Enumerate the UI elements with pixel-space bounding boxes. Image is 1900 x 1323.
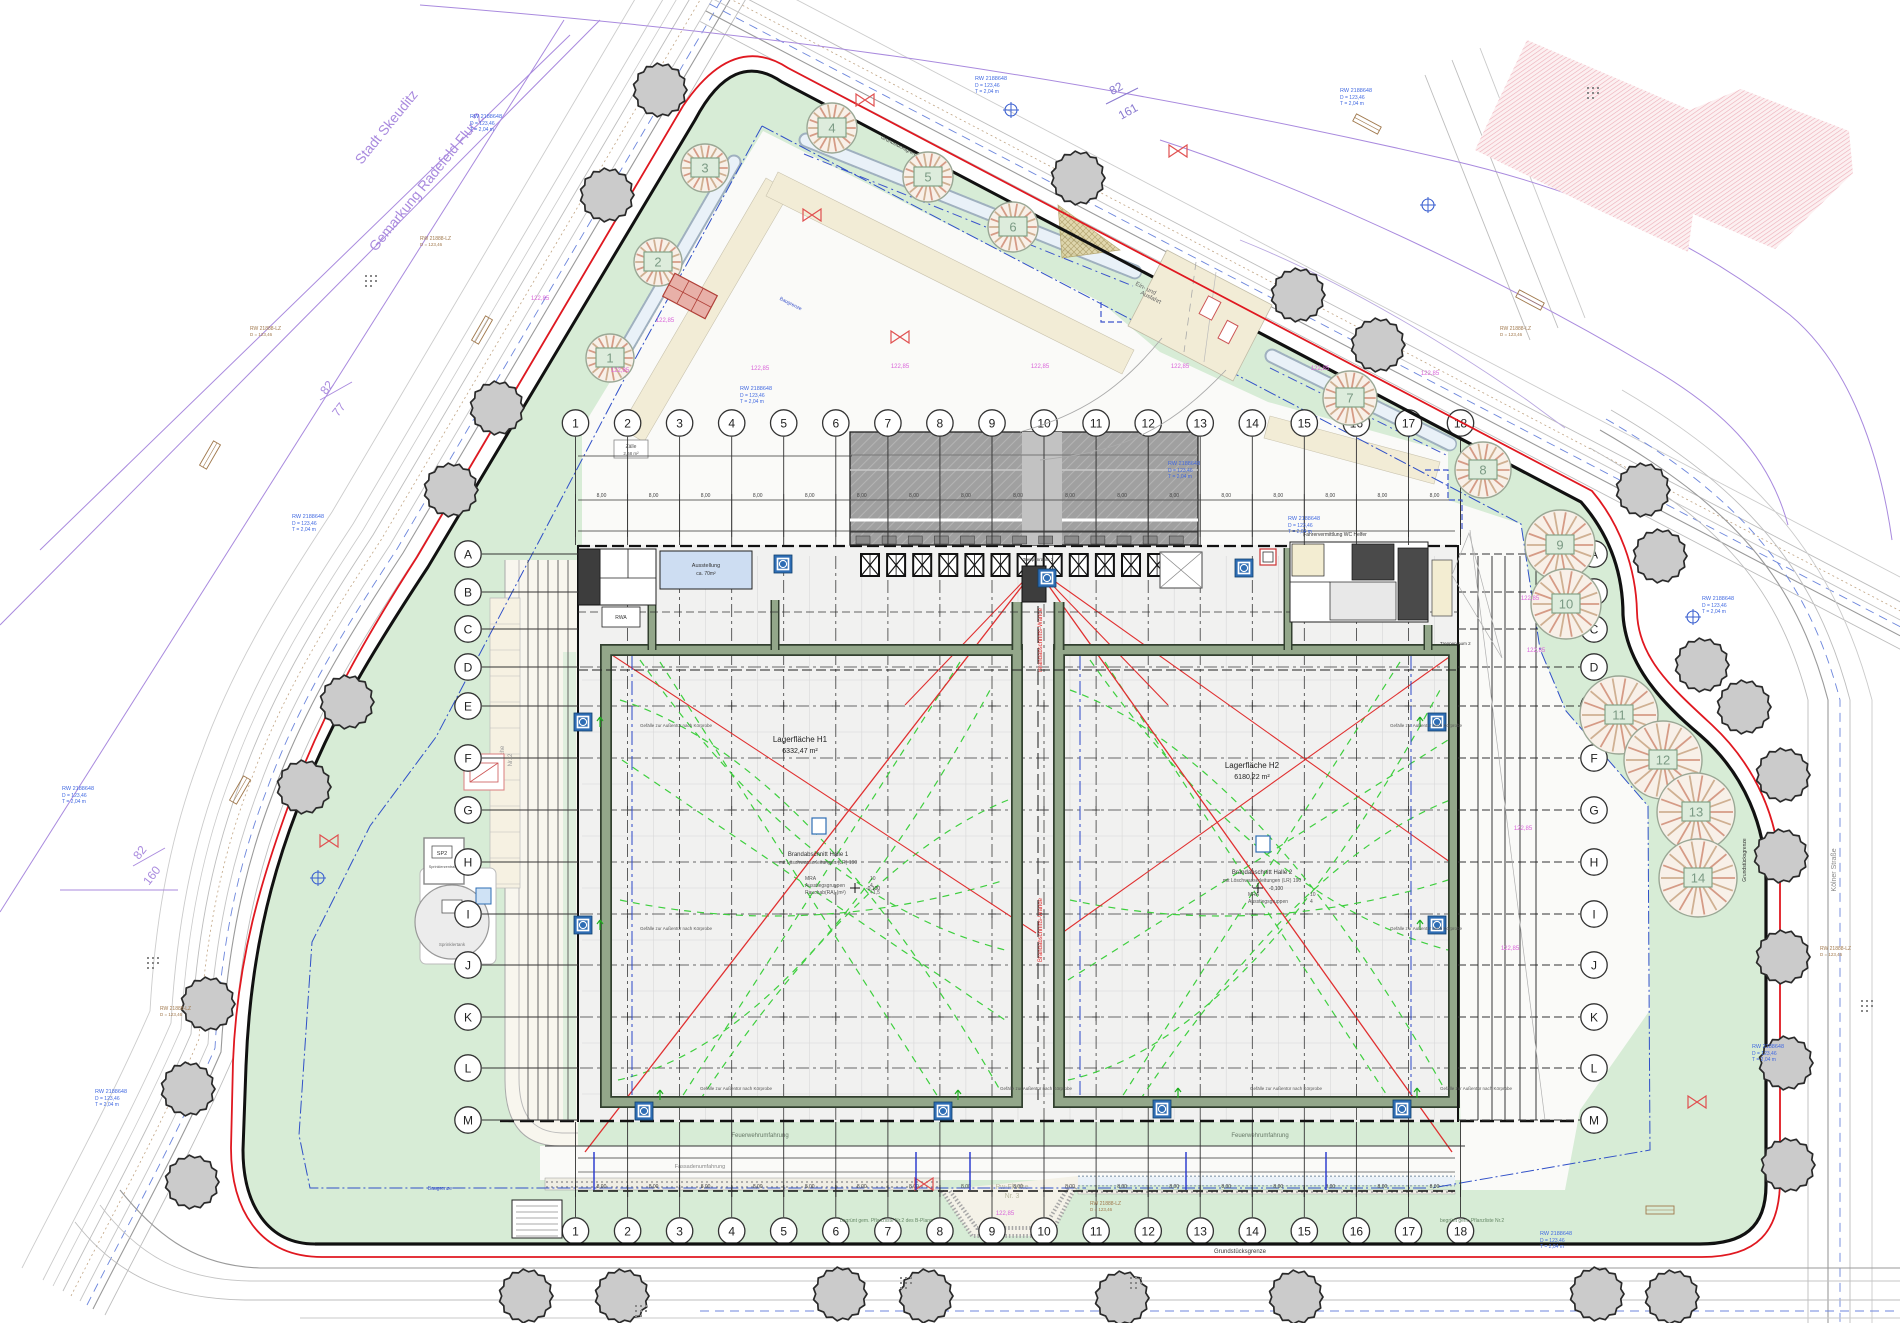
svg-text:13: 13 bbox=[1689, 805, 1703, 820]
svg-text:4: 4 bbox=[828, 121, 835, 136]
svg-text:L: L bbox=[465, 1062, 472, 1076]
svg-text:14: 14 bbox=[1246, 1225, 1260, 1239]
svg-text:10: 10 bbox=[1310, 892, 1316, 898]
svg-text:T = 2,04 m: T = 2,04 m bbox=[95, 1102, 119, 1108]
svg-text:122,85: 122,85 bbox=[996, 1211, 1015, 1217]
svg-text:T = 2,04 m: T = 2,04 m bbox=[1288, 529, 1312, 535]
svg-text:8: 8 bbox=[937, 417, 944, 431]
svg-text:4: 4 bbox=[728, 1225, 735, 1239]
svg-text:T = 2,04 m: T = 2,04 m bbox=[62, 799, 86, 805]
svg-text:Gefälle zur Außentür nach Körp: Gefälle zur Außentür nach Körprobe bbox=[1000, 1086, 1073, 1091]
svg-text:C: C bbox=[464, 623, 473, 637]
svg-text:M: M bbox=[1589, 1114, 1599, 1128]
svg-text:H: H bbox=[1590, 856, 1599, 870]
svg-text:RW 2188648: RW 2188648 bbox=[1340, 88, 1372, 94]
svg-text:8,00: 8,00 bbox=[805, 1184, 815, 1190]
svg-text:8,00: 8,00 bbox=[857, 493, 867, 499]
svg-text:D: D bbox=[1590, 661, 1599, 675]
svg-text:RW 2188648: RW 2188648 bbox=[740, 386, 772, 392]
svg-text:8,00: 8,00 bbox=[597, 1184, 607, 1190]
svg-text:10: 10 bbox=[1037, 1225, 1051, 1239]
svg-text:8,00: 8,00 bbox=[1273, 493, 1283, 499]
svg-text:122,85: 122,85 bbox=[1521, 596, 1540, 602]
svg-text:B: B bbox=[464, 586, 472, 600]
svg-text:1: 1 bbox=[572, 417, 579, 431]
svg-text:6: 6 bbox=[832, 417, 839, 431]
svg-text:J: J bbox=[465, 959, 471, 973]
svg-text:3: 3 bbox=[676, 1225, 683, 1239]
svg-text:Ausstiegsgruppen: Ausstiegsgruppen bbox=[1248, 899, 1288, 905]
svg-text:H: H bbox=[464, 856, 473, 870]
svg-text:8,00: 8,00 bbox=[909, 493, 919, 499]
svg-text:J: J bbox=[1591, 959, 1597, 973]
svg-text:Lagerfläche H1: Lagerfläche H1 bbox=[773, 735, 828, 744]
svg-text:MRA: MRA bbox=[805, 876, 817, 882]
svg-text:8,00: 8,00 bbox=[1065, 493, 1075, 499]
svg-text:10: 10 bbox=[1037, 417, 1051, 431]
svg-text:begrünt gem. Pflanzliste Nr.2: begrünt gem. Pflanzliste Nr.2 bbox=[1440, 1218, 1504, 1224]
svg-text:15: 15 bbox=[1298, 1225, 1312, 1239]
svg-text:T = 2,04 m: T = 2,04 m bbox=[470, 127, 494, 133]
svg-text:3: 3 bbox=[701, 161, 708, 176]
svg-text:8,00: 8,00 bbox=[1430, 1184, 1440, 1190]
svg-text:RW 2188648: RW 2188648 bbox=[1168, 461, 1200, 467]
svg-text:1: 1 bbox=[606, 351, 613, 366]
svg-text:RW 2188648: RW 2188648 bbox=[292, 514, 324, 520]
svg-text:8: 8 bbox=[1479, 463, 1486, 478]
svg-text:17: 17 bbox=[1402, 417, 1416, 431]
svg-text:M: M bbox=[463, 1114, 473, 1128]
svg-text:Gefälle zur Außentür nach Körp: Gefälle zur Außentür nach Körprobe bbox=[640, 723, 713, 728]
svg-text:Brandabschnitts-Wände: Brandabschnitts-Wände bbox=[1038, 607, 1044, 672]
svg-text:11: 11 bbox=[1612, 708, 1626, 723]
svg-text:8,00: 8,00 bbox=[597, 493, 607, 499]
svg-text:Ausstellung: Ausstellung bbox=[692, 563, 720, 569]
svg-text:mit Löschwasserleitungen (LR): mit Löschwasserleitungen (LR) 190 bbox=[1223, 878, 1302, 884]
svg-text:122,85: 122,85 bbox=[891, 364, 910, 370]
svg-text:T = 2,04 m: T = 2,04 m bbox=[1340, 101, 1364, 107]
svg-text:5: 5 bbox=[780, 417, 787, 431]
svg-text:F: F bbox=[1590, 752, 1597, 766]
svg-text:2: 2 bbox=[654, 255, 661, 270]
svg-text:D = 123,46: D = 123,46 bbox=[160, 1012, 183, 1017]
svg-text:4: 4 bbox=[728, 417, 735, 431]
svg-text:L: L bbox=[1591, 1062, 1598, 1076]
svg-text:Rauchab(RA) (m²): Rauchab(RA) (m²) bbox=[805, 890, 846, 896]
svg-text:122,85: 122,85 bbox=[1171, 364, 1190, 370]
svg-text:12: 12 bbox=[1656, 753, 1670, 768]
svg-text:8,00: 8,00 bbox=[1169, 493, 1179, 499]
svg-text:122,85: 122,85 bbox=[656, 318, 675, 324]
svg-text:RW 2188648: RW 2188648 bbox=[1702, 596, 1734, 602]
svg-text:8,00: 8,00 bbox=[753, 493, 763, 499]
svg-text:D: D bbox=[464, 661, 473, 675]
svg-text:11: 11 bbox=[1090, 1225, 1103, 1239]
svg-text:Fassadenumfahrung: Fassadenumfahrung bbox=[675, 1164, 725, 1170]
svg-text:mit Löschwasserleitungen (LR): mit Löschwasserleitungen (LR) 190 bbox=[779, 860, 858, 866]
svg-text:T = 2,04 m: T = 2,04 m bbox=[1540, 1244, 1564, 1250]
svg-text:13: 13 bbox=[1194, 417, 1208, 431]
svg-text:RW 2188648: RW 2188648 bbox=[1288, 516, 1320, 522]
svg-text:8,00: 8,00 bbox=[753, 1184, 763, 1190]
svg-text:7: 7 bbox=[885, 417, 892, 431]
svg-text:8,00: 8,00 bbox=[649, 493, 659, 499]
svg-text:G: G bbox=[463, 804, 472, 818]
svg-text:RW 2188648: RW 2188648 bbox=[62, 786, 94, 792]
svg-text:Grundstücksgrenze: Grundstücksgrenze bbox=[1214, 1249, 1267, 1255]
svg-text:F: F bbox=[464, 752, 471, 766]
svg-text:T = 2,04 m: T = 2,04 m bbox=[975, 89, 999, 95]
svg-text:Brandabschnitt Halle 1: Brandabschnitt Halle 1 bbox=[788, 852, 849, 858]
svg-text:11: 11 bbox=[1090, 417, 1103, 431]
svg-text:8,00: 8,00 bbox=[909, 1184, 919, 1190]
svg-text:begrünt gem. Pflanzliste Nr.2: begrünt gem. Pflanzliste Nr.2 des B-Plan… bbox=[840, 1218, 933, 1224]
svg-text:5: 5 bbox=[780, 1225, 787, 1239]
svg-text:RW 2188648: RW 2188648 bbox=[95, 1089, 127, 1095]
svg-text:8,00: 8,00 bbox=[1325, 1184, 1335, 1190]
svg-text:D = 123,46: D = 123,46 bbox=[1090, 1207, 1113, 1212]
svg-text:122,85: 122,85 bbox=[1311, 366, 1330, 372]
svg-text:6: 6 bbox=[832, 1225, 839, 1239]
svg-text:SP2: SP2 bbox=[437, 851, 447, 857]
svg-text:6180,22 m²: 6180,22 m² bbox=[1234, 774, 1270, 781]
svg-text:6332,47 m²: 6332,47 m² bbox=[782, 748, 818, 755]
svg-text:122,85: 122,85 bbox=[1501, 946, 1520, 952]
svg-text:Ausstiegsgruppen: Ausstiegsgruppen bbox=[805, 883, 845, 889]
svg-text:8,00: 8,00 bbox=[701, 1184, 711, 1190]
svg-text:8,00: 8,00 bbox=[1430, 493, 1440, 499]
svg-text:Brandabschnitts-Wände: Brandabschnitts-Wände bbox=[1038, 897, 1044, 962]
svg-text:8,00: 8,00 bbox=[1273, 1184, 1283, 1190]
svg-text:8,00: 8,00 bbox=[961, 493, 971, 499]
svg-text:I: I bbox=[1592, 908, 1595, 922]
svg-text:T = 2,04 m: T = 2,04 m bbox=[1168, 474, 1192, 480]
svg-text:8,00: 8,00 bbox=[1117, 493, 1127, 499]
svg-text:7: 7 bbox=[1346, 391, 1353, 406]
svg-text:G: G bbox=[1589, 804, 1598, 818]
svg-text:Fahrervermittlung WC Helfer: Fahrervermittlung WC Helfer bbox=[1303, 532, 1367, 538]
svg-text:17: 17 bbox=[1402, 1225, 1416, 1239]
svg-text:Gefälle zur Außentür nach Körp: Gefälle zur Außentür nach Körprobe bbox=[1250, 1086, 1323, 1091]
svg-text:8,00: 8,00 bbox=[701, 493, 711, 499]
svg-text:RW 2188648: RW 2188648 bbox=[470, 114, 502, 120]
svg-text:Feuerwehrumfahrung: Feuerwehrumfahrung bbox=[731, 1133, 788, 1139]
svg-text:RWA: RWA bbox=[615, 615, 627, 621]
svg-text:122,85: 122,85 bbox=[1031, 364, 1050, 370]
svg-text:E: E bbox=[464, 700, 472, 714]
svg-text:8,00: 8,00 bbox=[1013, 1184, 1023, 1190]
svg-text:Grundstücksgrenze: Grundstücksgrenze bbox=[1742, 838, 1748, 882]
svg-text:Gefälle zur Außentür nach Körp: Gefälle zur Außentür nach Körprobe bbox=[1390, 926, 1463, 931]
svg-text:8,00: 8,00 bbox=[1117, 1184, 1127, 1190]
svg-text:Sprinklertank: Sprinklertank bbox=[439, 942, 466, 947]
svg-text:10: 10 bbox=[1559, 597, 1573, 612]
svg-text:122,85: 122,85 bbox=[1514, 826, 1533, 832]
svg-text:122,85: 122,85 bbox=[1421, 371, 1440, 377]
svg-text:Gefälle zur Außentür nach Körp: Gefälle zur Außentür nach Körprobe bbox=[1440, 1086, 1513, 1091]
svg-text:13: 13 bbox=[1194, 1225, 1208, 1239]
svg-text:10: 10 bbox=[870, 876, 876, 882]
svg-text:122,85: 122,85 bbox=[531, 296, 550, 302]
svg-text:RW 2188648: RW 2188648 bbox=[1540, 1231, 1572, 1237]
svg-text:2: 2 bbox=[624, 1225, 631, 1239]
svg-text:8,00: 8,00 bbox=[1378, 1184, 1388, 1190]
svg-text:1: 1 bbox=[572, 1225, 579, 1239]
svg-text:8,00: 8,00 bbox=[1221, 1184, 1231, 1190]
svg-text:T = 2,04 m: T = 2,04 m bbox=[292, 527, 316, 533]
svg-text:8,00: 8,00 bbox=[1013, 493, 1023, 499]
svg-text:3: 3 bbox=[676, 417, 683, 431]
svg-text:8,00: 8,00 bbox=[1065, 1184, 1075, 1190]
svg-text:D = 123,46: D = 123,46 bbox=[1500, 332, 1523, 337]
svg-text:T = 2,04 m: T = 2,04 m bbox=[1702, 609, 1726, 615]
svg-text:-0,100: -0,100 bbox=[866, 886, 880, 892]
svg-text:Brandabschnitt Halle 2: Brandabschnitt Halle 2 bbox=[1232, 870, 1293, 876]
svg-text:ca. 70m²: ca. 70m² bbox=[696, 571, 716, 577]
svg-text:Lagerfläche H2: Lagerfläche H2 bbox=[1225, 761, 1280, 770]
svg-text:D = 123,46: D = 123,46 bbox=[1820, 952, 1843, 957]
svg-text:7: 7 bbox=[885, 1225, 892, 1239]
svg-text:6: 6 bbox=[1009, 220, 1016, 235]
svg-text:8,00: 8,00 bbox=[1378, 493, 1388, 499]
svg-text:Treppenraum 3: Treppenraum 3 bbox=[1023, 557, 1054, 562]
svg-text:K: K bbox=[464, 1011, 472, 1025]
svg-text:18: 18 bbox=[1454, 1225, 1468, 1239]
svg-text:14: 14 bbox=[1246, 417, 1260, 431]
svg-text:8,00: 8,00 bbox=[1169, 1184, 1179, 1190]
svg-text:8,00: 8,00 bbox=[857, 1184, 867, 1190]
svg-text:122,85: 122,85 bbox=[611, 368, 630, 374]
svg-text:2,68 m²: 2,68 m² bbox=[623, 451, 639, 456]
svg-text:Baugrenze: Baugrenze bbox=[428, 1186, 452, 1192]
svg-text:T = 2,04 m: T = 2,04 m bbox=[740, 399, 764, 405]
svg-text:D = 123,46: D = 123,46 bbox=[420, 242, 443, 247]
svg-text:D = 123,46: D = 123,46 bbox=[250, 332, 273, 337]
svg-text:16: 16 bbox=[1350, 1225, 1364, 1239]
svg-text:122,85: 122,85 bbox=[1527, 648, 1546, 654]
svg-text:RW 2188648: RW 2188648 bbox=[1752, 1044, 1784, 1050]
svg-text:8: 8 bbox=[937, 1225, 944, 1239]
svg-text:5: 5 bbox=[924, 170, 931, 185]
svg-text:K: K bbox=[1590, 1011, 1598, 1025]
svg-text:-0,100: -0,100 bbox=[1269, 886, 1283, 892]
svg-text:14: 14 bbox=[1691, 871, 1705, 886]
svg-text:I: I bbox=[466, 908, 469, 922]
svg-text:12: 12 bbox=[1142, 417, 1156, 431]
svg-text:Gefälle zur Außentür nach Körp: Gefälle zur Außentür nach Körprobe bbox=[700, 1086, 773, 1091]
svg-text:Treppenraum 2: Treppenraum 2 bbox=[1440, 641, 1471, 646]
svg-text:8,00: 8,00 bbox=[805, 493, 815, 499]
svg-text:9: 9 bbox=[989, 417, 996, 431]
svg-text:Nr. 2: Nr. 2 bbox=[508, 753, 514, 766]
svg-text:12: 12 bbox=[1142, 1225, 1156, 1239]
svg-text:Nr. 3: Nr. 3 bbox=[1005, 1193, 1020, 1200]
svg-text:9: 9 bbox=[1556, 538, 1563, 553]
svg-text:Kölner Straße: Kölner Straße bbox=[1831, 848, 1838, 891]
svg-text:RW 2188648: RW 2188648 bbox=[975, 76, 1007, 82]
svg-text:9: 9 bbox=[989, 1225, 996, 1239]
svg-text:2: 2 bbox=[624, 417, 631, 431]
svg-text:A: A bbox=[464, 548, 472, 562]
svg-text:8,00: 8,00 bbox=[1221, 493, 1231, 499]
svg-text:4: 4 bbox=[1310, 899, 1313, 905]
svg-text:Gefälle zur Außentür nach Körp: Gefälle zur Außentür nach Körprobe bbox=[640, 926, 713, 931]
svg-text:Sprinklerzentrale: Sprinklerzentrale bbox=[429, 865, 458, 869]
svg-text:8,00: 8,00 bbox=[1325, 493, 1335, 499]
svg-text:T = 2,04 m: T = 2,04 m bbox=[1752, 1057, 1776, 1063]
svg-text:Gefälle zur Außentür nach Körp: Gefälle zur Außentür nach Körprobe bbox=[1390, 723, 1463, 728]
svg-text:8,00: 8,00 bbox=[649, 1184, 659, 1190]
svg-text:122,85: 122,85 bbox=[751, 366, 770, 372]
svg-text:15: 15 bbox=[1298, 417, 1312, 431]
svg-text:Feuerwehrumfahrung: Feuerwehrumfahrung bbox=[1231, 1133, 1288, 1139]
